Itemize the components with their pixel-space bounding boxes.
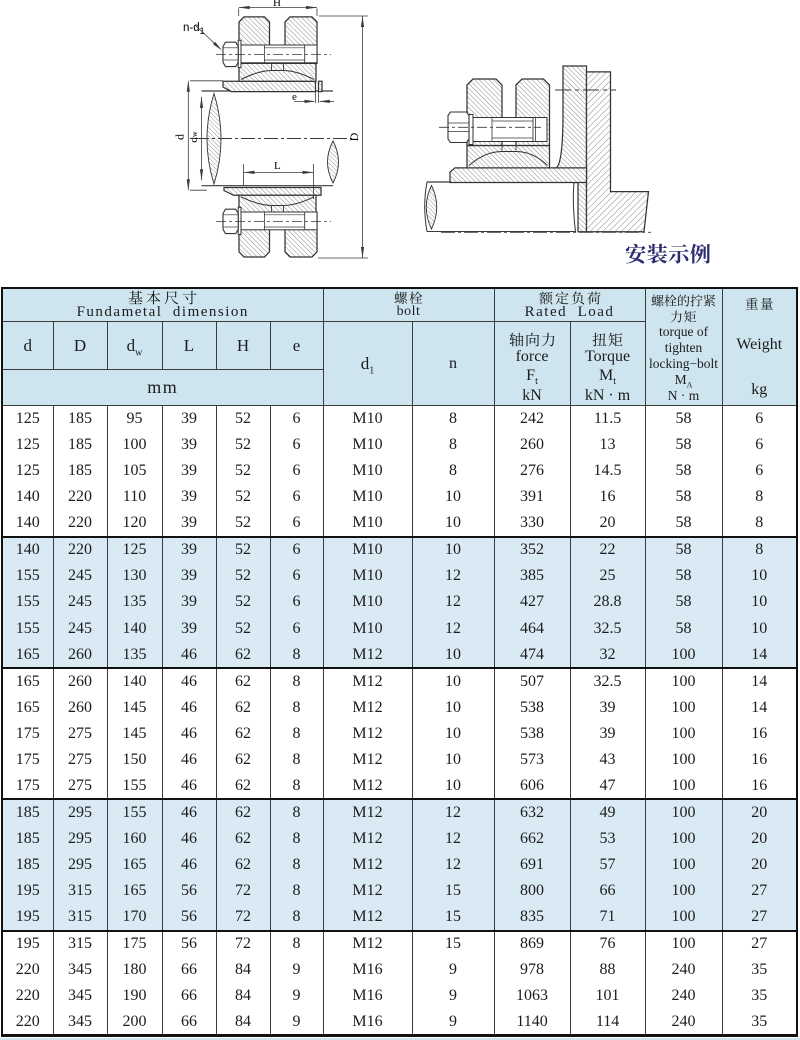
- svg-text:D: D: [347, 132, 361, 141]
- svg-text:d: d: [173, 134, 187, 140]
- svg-text:n-d1: n-d1: [183, 22, 205, 36]
- svg-text:L: L: [274, 160, 281, 172]
- svg-text:dw: dw: [188, 131, 200, 143]
- svg-text:H: H: [273, 0, 281, 9]
